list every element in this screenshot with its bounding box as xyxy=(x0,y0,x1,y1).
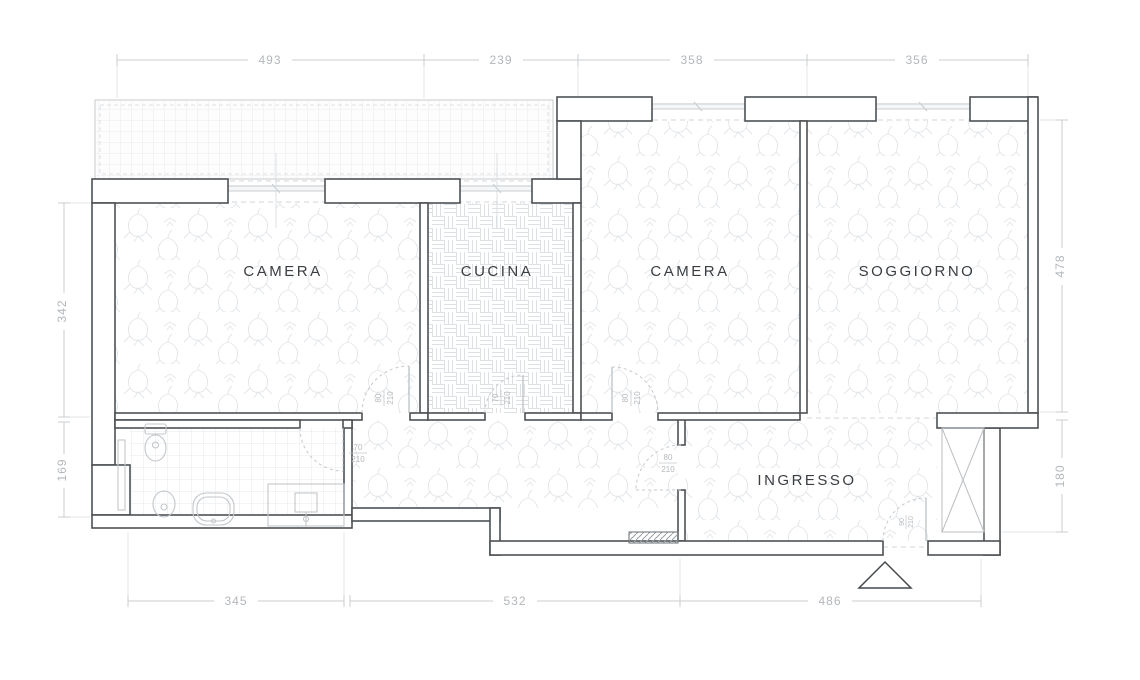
terrace-tile-grid xyxy=(95,100,553,179)
room-label-camera-2: CAMERA xyxy=(650,263,729,280)
floor-corridor xyxy=(352,420,678,508)
wall-corridor-bottom xyxy=(352,508,500,521)
wall-partition-cucina-camera2 xyxy=(573,203,581,413)
wall-segment xyxy=(410,413,428,420)
dim-label-group: 169 xyxy=(55,458,69,481)
door-height: 210 xyxy=(633,391,642,405)
wall-cucina-bottom xyxy=(428,413,485,420)
room-label-cucina: CUCINA xyxy=(461,263,534,280)
wall-segment xyxy=(532,179,581,203)
dim-value-right-2: 180 xyxy=(1053,464,1067,487)
wall-partition-camera1-cucina xyxy=(420,203,428,413)
wall-segment xyxy=(343,420,352,428)
terrace xyxy=(95,100,553,179)
shaft-box xyxy=(942,428,984,532)
door-height: 210 xyxy=(386,391,395,405)
dim-value-bottom-3: 486 xyxy=(818,594,841,608)
door-height: 210 xyxy=(908,516,915,528)
room-floor-camera-1 xyxy=(115,203,420,413)
dim-value-top-1: 493 xyxy=(258,53,281,67)
wall-segment xyxy=(525,413,581,420)
door-width: 90 xyxy=(899,518,906,526)
wall-segment xyxy=(928,541,1000,555)
wall-segment xyxy=(557,97,652,121)
wall-segment-right-exterior xyxy=(1028,97,1038,413)
wall-partition-camera2-soggiorno xyxy=(800,121,807,413)
dim-value-top-4: 356 xyxy=(905,53,928,67)
window-camera-2 xyxy=(652,102,745,111)
wall-segment xyxy=(92,465,130,515)
dim-value-top-3: 358 xyxy=(680,53,703,67)
dim-label-group: 180 xyxy=(1053,464,1067,487)
dim-value-top-2: 239 xyxy=(489,53,512,67)
dim-value-bottom-2: 532 xyxy=(503,594,526,608)
dim-value-left-1: 342 xyxy=(55,299,69,322)
door-width: 70 xyxy=(354,443,363,452)
wall-camera1-bottom xyxy=(115,413,362,420)
window-soggiorno xyxy=(876,102,970,111)
dim-value-bottom-1: 345 xyxy=(224,594,247,608)
wall-camera2-bottom xyxy=(581,413,612,420)
wall-segment-left-exterior xyxy=(92,203,115,465)
wall-ingresso-bottom xyxy=(490,541,883,555)
dim-value-left-2: 169 xyxy=(55,458,69,481)
wall-segment xyxy=(557,121,581,179)
door-width: 80 xyxy=(664,453,673,462)
door-width: 70 xyxy=(491,393,500,402)
floor-plan: 80 210 70 210 80 210 xyxy=(0,0,1140,680)
door-height: 210 xyxy=(503,391,512,405)
room-floor-cucina xyxy=(428,203,573,413)
wall-segment xyxy=(745,97,876,121)
dim-label-group: 478 xyxy=(1053,254,1067,277)
room-label-soggiorno: SOGGIORNO xyxy=(859,263,976,280)
dim-value-right-1: 478 xyxy=(1053,254,1067,277)
wall-bathroom-top xyxy=(115,420,300,428)
wall-bathroom-right xyxy=(344,420,352,515)
entry-triangle-marker xyxy=(859,562,911,588)
hatched-wall-niche xyxy=(629,532,678,543)
window-cucina xyxy=(460,184,532,193)
floor-bathroom xyxy=(130,428,344,515)
wall-segment xyxy=(678,418,685,445)
wall-segment xyxy=(678,490,685,541)
dimensions-top: 493 239 358 356 xyxy=(117,53,1028,98)
door-width: 80 xyxy=(374,393,383,402)
dim-label-group: 342 xyxy=(55,299,69,322)
door-height: 210 xyxy=(661,465,675,474)
wall-segment xyxy=(92,179,228,203)
room-label-camera-1: CAMERA xyxy=(243,263,322,280)
wall-segment xyxy=(325,179,460,203)
wall-segment xyxy=(984,428,1000,555)
wall-segment xyxy=(658,413,800,420)
wall-segment xyxy=(937,413,1038,428)
wall-segment xyxy=(970,97,1037,121)
door-height: 210 xyxy=(351,455,365,464)
dimensions-left: 342 169 xyxy=(55,203,90,517)
room-label-ingresso: INGRESSO xyxy=(757,472,856,489)
door-width: 80 xyxy=(621,393,630,402)
